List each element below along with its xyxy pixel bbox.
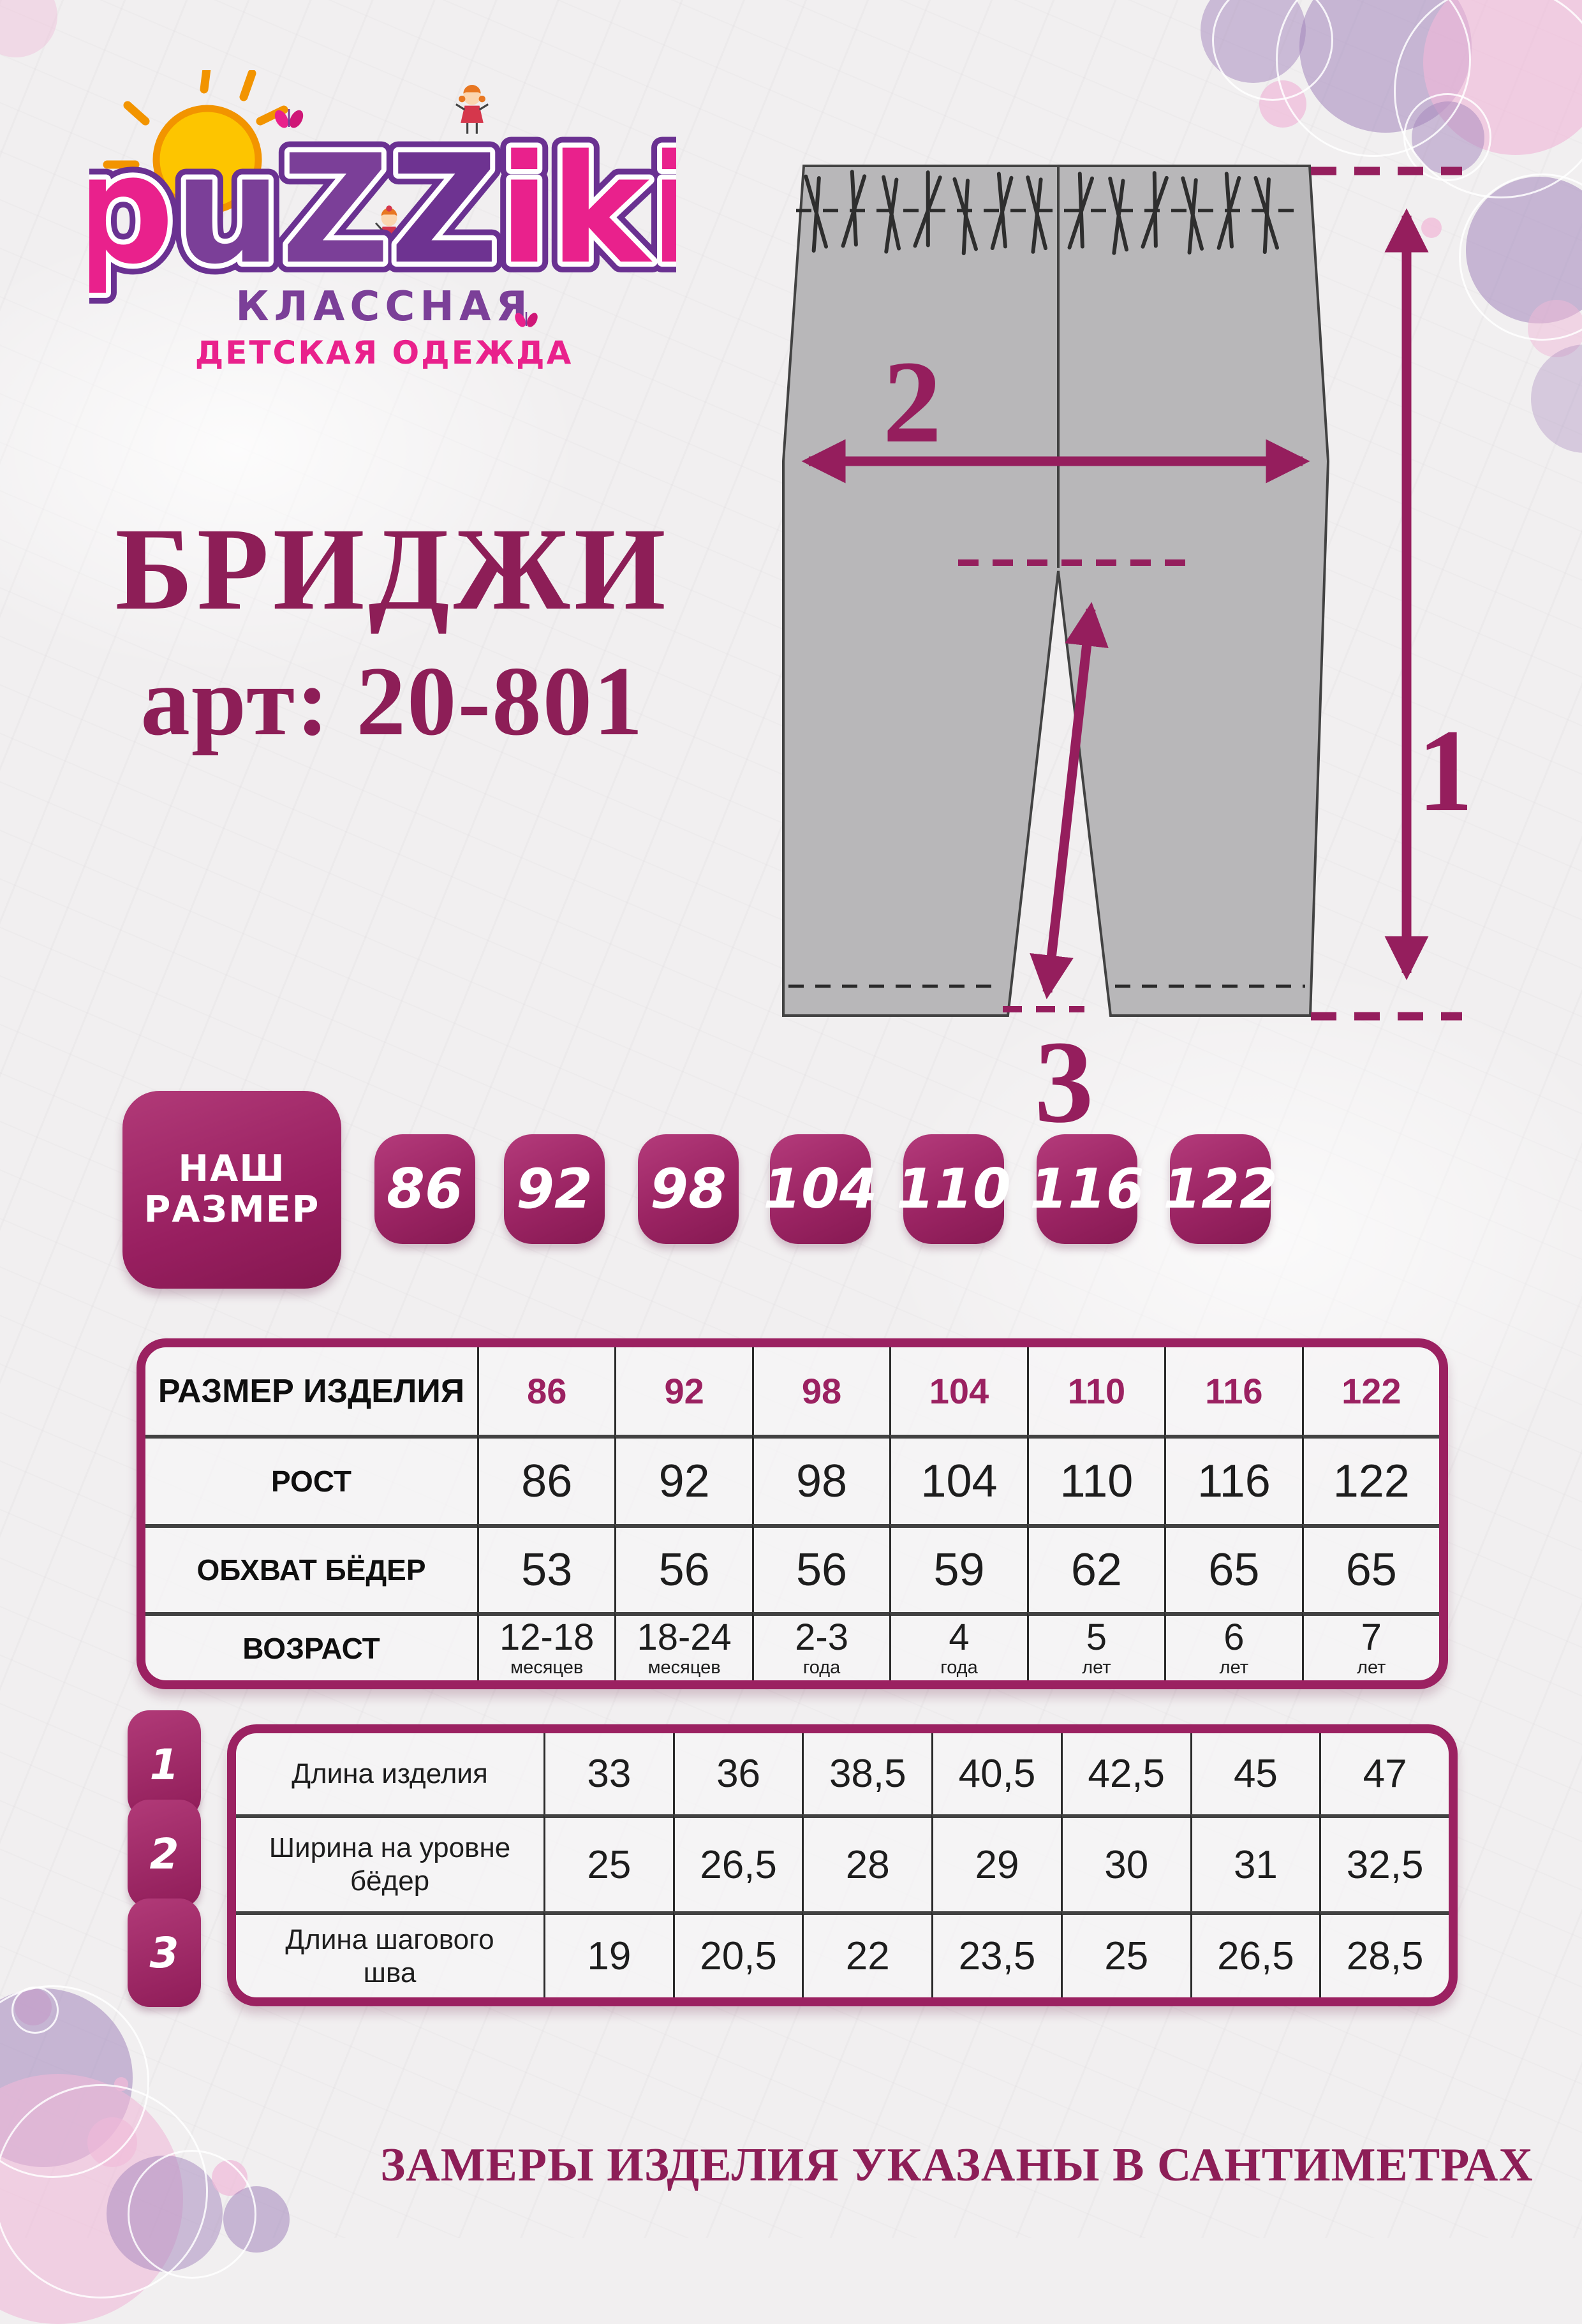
size-chip-86: 86 xyxy=(374,1134,475,1244)
table-value: 31 xyxy=(1190,1814,1320,1911)
table-value: 86 xyxy=(477,1435,614,1524)
size-chip-116: 116 xyxy=(1037,1134,1137,1244)
table-value: 29 xyxy=(931,1814,1061,1911)
size-table-header-value: 122 xyxy=(1302,1347,1439,1435)
size-chip-98: 98 xyxy=(638,1134,739,1244)
table-value: 25 xyxy=(543,1814,673,1911)
size-table-header-value: 86 xyxy=(477,1347,614,1435)
table-value: 36 xyxy=(673,1733,802,1814)
hips-row-label: ОБХВАТ БЁДЕР xyxy=(145,1524,477,1612)
brand-tagline-2: ДЕТСКАЯ ОДЕЖДА xyxy=(195,334,573,371)
size-table-header-value: 98 xyxy=(752,1347,889,1435)
table-value: 104 xyxy=(889,1435,1026,1524)
table-value: 38,5 xyxy=(802,1733,931,1814)
flyer-page: puZZiki puZZiki puZZiki КЛАССНАЯ ДЕТСКАЯ… xyxy=(0,0,1582,2238)
table-value: 65 xyxy=(1302,1524,1439,1612)
brand-tagline-1: КЛАССНАЯ xyxy=(235,283,532,330)
size-chip-110: 110 xyxy=(903,1134,1004,1244)
product-title: БРИДЖИ xyxy=(77,510,708,628)
measure-badge-3: 3 xyxy=(128,1898,201,2007)
table-value: 19 xyxy=(543,1911,673,1997)
table-value: 98 xyxy=(752,1435,889,1524)
measure-table: Длина изделия 33 36 38,5 40,5 42,5 45 47… xyxy=(227,1724,1458,2006)
table-value: 33 xyxy=(543,1733,673,1814)
table-value: 18-24месяцев xyxy=(614,1612,751,1680)
table-value: 26,5 xyxy=(1190,1911,1320,1997)
product-article: арт: 20-801 xyxy=(77,652,708,751)
table-value: 116 xyxy=(1164,1435,1301,1524)
brand-word: puZZiki xyxy=(89,123,676,297)
table-value: 6лет xyxy=(1164,1612,1301,1680)
table-value: 45 xyxy=(1190,1733,1320,1814)
size-table-header-value: 104 xyxy=(889,1347,1026,1435)
age-row-label: ВОЗРАСТ xyxy=(145,1612,477,1680)
our-size-line1: НАШ xyxy=(178,1149,285,1190)
table-value: 110 xyxy=(1027,1435,1164,1524)
table-value: 26,5 xyxy=(673,1814,802,1911)
measure-row-label: Ширина на уровне бёдер xyxy=(236,1814,543,1911)
height-row-label: РОСТ xyxy=(145,1435,477,1524)
table-value: 12-18месяцев xyxy=(477,1612,614,1680)
size-table: РАЗМЕР ИЗДЕЛИЯ 86 92 98 104 110 116 122 … xyxy=(137,1338,1448,1689)
table-value: 22 xyxy=(802,1911,931,1997)
width-label: 2 xyxy=(883,337,942,468)
table-value: 122 xyxy=(1302,1435,1439,1524)
table-value: 4года xyxy=(889,1612,1026,1680)
size-table-header-value: 92 xyxy=(614,1347,751,1435)
table-value: 65 xyxy=(1164,1524,1301,1612)
table-value: 20,5 xyxy=(673,1911,802,1997)
table-value: 56 xyxy=(614,1524,751,1612)
inseam-label: 3 xyxy=(1035,1017,1094,1142)
measure-row-label: Длина изделия xyxy=(236,1733,543,1814)
table-value: 47 xyxy=(1319,1733,1449,1814)
table-value: 56 xyxy=(752,1524,889,1612)
table-value: 42,5 xyxy=(1061,1733,1190,1814)
measure-badge-2: 2 xyxy=(128,1800,201,1908)
size-table-header-value: 116 xyxy=(1164,1347,1301,1435)
table-value: 28,5 xyxy=(1319,1911,1449,1997)
table-value: 92 xyxy=(614,1435,751,1524)
size-table-header-value: 110 xyxy=(1027,1347,1164,1435)
measure-row-label: Длина шагового шва xyxy=(236,1911,543,1997)
table-value: 32,5 xyxy=(1319,1814,1449,1911)
table-value: 59 xyxy=(889,1524,1026,1612)
table-value: 30 xyxy=(1061,1814,1190,1911)
table-value: 40,5 xyxy=(931,1733,1061,1814)
table-value: 62 xyxy=(1027,1524,1164,1612)
our-size-line2: РАЗМЕР xyxy=(144,1190,320,1231)
table-value: 2-3года xyxy=(752,1612,889,1680)
our-size-badge: НАШ РАЗМЕР xyxy=(122,1091,341,1289)
table-value: 5лет xyxy=(1027,1612,1164,1680)
measurement-units-note: ЗАМЕРЫ ИЗДЕЛИЯ УКАЗАНЫ В САНТИМЕТРАХ xyxy=(357,2138,1556,2193)
table-value: 23,5 xyxy=(931,1911,1061,1997)
pants-diagram: 2 3 1 xyxy=(727,147,1467,1142)
table-value: 25 xyxy=(1061,1911,1190,1997)
table-value: 53 xyxy=(477,1524,614,1612)
length-label: 1 xyxy=(1417,706,1467,836)
table-value: 28 xyxy=(802,1814,931,1911)
brand-logo: puZZiki puZZiki puZZiki КЛАССНАЯ ДЕТСКАЯ… xyxy=(89,70,676,383)
table-value: 7лет xyxy=(1302,1612,1439,1680)
size-chip-92: 92 xyxy=(504,1134,605,1244)
size-chip-104: 104 xyxy=(770,1134,871,1244)
size-chip-122: 122 xyxy=(1170,1134,1271,1244)
size-table-header-label: РАЗМЕР ИЗДЕЛИЯ xyxy=(145,1347,477,1435)
